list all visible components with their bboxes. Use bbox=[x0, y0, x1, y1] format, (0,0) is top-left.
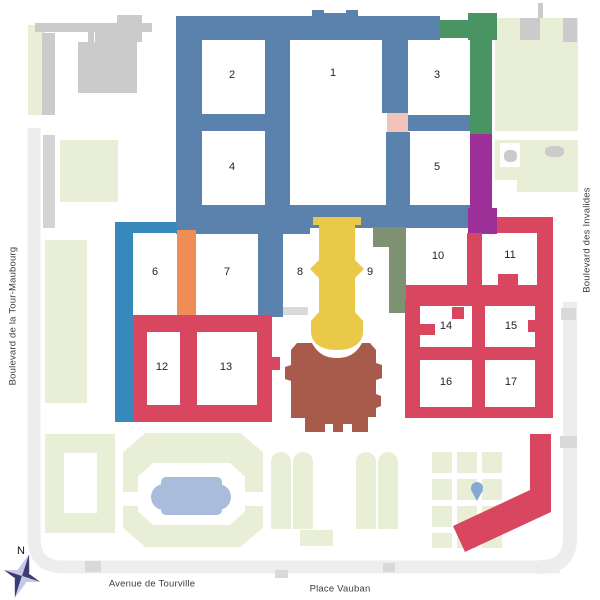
courtyard-label-1: 1 bbox=[330, 67, 336, 79]
saint-louis-church-shape bbox=[310, 217, 364, 350]
courtyard-label-13: 13 bbox=[220, 361, 232, 373]
courtyard-label-14: 14 bbox=[440, 320, 452, 332]
map-pin-icon bbox=[471, 490, 483, 501]
street-label-vauban: Place Vauban bbox=[310, 584, 371, 595]
street-label-invalides: Boulevard des Invalides bbox=[582, 187, 593, 292]
rampart-wall-shape bbox=[453, 434, 551, 552]
street-label-tourville: Avenue de Tourville bbox=[109, 579, 195, 590]
courtyard-label-9: 9 bbox=[367, 266, 373, 278]
dome-church-shape bbox=[285, 343, 382, 432]
courtyard-label-15: 15 bbox=[505, 320, 517, 332]
courtyard-label-12: 12 bbox=[156, 361, 168, 373]
compass-north-label: N bbox=[17, 545, 25, 557]
courtyard-label-8: 8 bbox=[297, 266, 303, 278]
courtyard-label-11: 11 bbox=[504, 249, 515, 261]
courtyard-label-3: 3 bbox=[434, 69, 440, 81]
courtyard-label-4: 4 bbox=[229, 161, 235, 173]
courtyard-label-6: 6 bbox=[152, 266, 158, 278]
courtyard-label-2: 2 bbox=[229, 69, 235, 81]
invalides-site-map: 1 2 3 4 5 6 7 8 9 10 11 12 13 14 15 16 1… bbox=[0, 0, 600, 600]
courtyard-label-16: 16 bbox=[440, 376, 452, 388]
courtyard-label-7: 7 bbox=[224, 266, 230, 278]
courtyard-label-17: 17 bbox=[505, 376, 517, 388]
courtyard-label-5: 5 bbox=[434, 161, 440, 173]
shapes-layer bbox=[0, 0, 600, 600]
courtyard-label-10: 10 bbox=[432, 250, 444, 262]
street-label-tour-maubourg: Boulevard de la Tour-Maubourg bbox=[8, 247, 19, 386]
